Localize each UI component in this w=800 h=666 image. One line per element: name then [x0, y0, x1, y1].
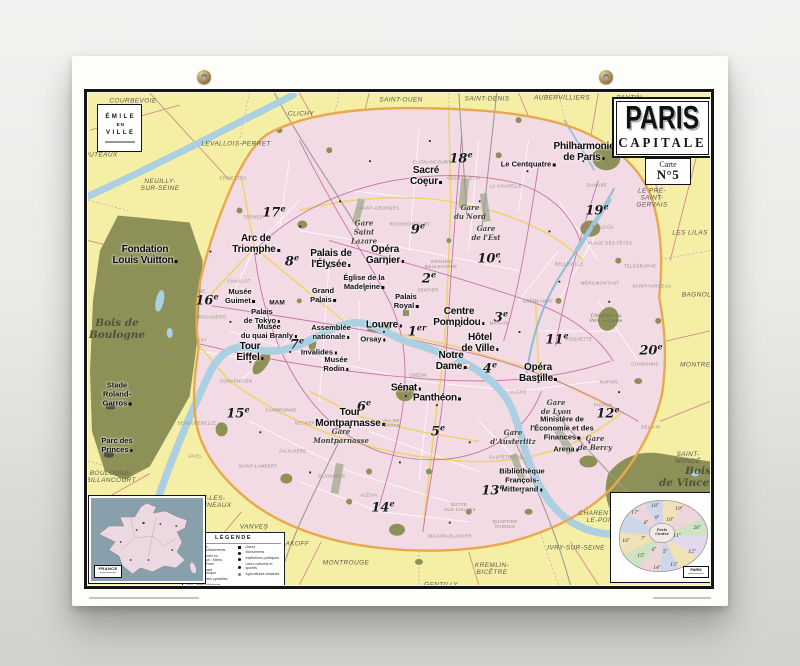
legend-item-label: Aires piétonnes — [196, 584, 221, 585]
map-label-m2: MuséeGuimet — [225, 287, 255, 305]
map-label-m1: NotreDame — [436, 350, 467, 372]
map-label-m1: Hôtelde Ville — [461, 332, 498, 354]
map-label-m1: Panthéon — [413, 393, 461, 404]
legend-item-label: Monuments — [246, 551, 265, 555]
map-label-arr: 14e — [371, 498, 394, 515]
map-label-sub: SAINT-MANDÉ — [675, 451, 700, 465]
legend-swatch-dot-icon — [238, 552, 241, 555]
map-frame: COURBEVOIEPUTEAUXNEUILLY-SUR-SEINELEVALL… — [84, 89, 714, 589]
map-label-arr: 8e — [285, 252, 299, 269]
map-label-arr: 1er — [408, 322, 426, 339]
map-label-q: JAVEL — [188, 454, 203, 459]
map-label-m2: PalaisRoyal — [394, 292, 419, 310]
map-label-q: TERNES — [243, 215, 263, 220]
arrondissement-number: 7e — [641, 536, 646, 543]
map-label-q: LA MOUZAÏA — [584, 225, 613, 230]
map-label-sub: LE PRÉ-SAINT-GERVAIS — [636, 188, 667, 209]
map-label-sub: MONTROUGE — [323, 560, 370, 567]
map-label-q: OBERKAMPF — [523, 299, 553, 304]
paris-map-poster: COURBEVOIEPUTEAUXNEUILLY-SUR-SEINELEVALL… — [72, 56, 728, 606]
map-label-sub: VANVES — [240, 524, 268, 531]
map-label-q: NATION — [600, 380, 618, 385]
map-label-m2: Palaisde Tokyo — [244, 307, 280, 325]
arrondissement-number: 19e — [675, 506, 683, 513]
map-label-q: PLAISANCE — [318, 474, 345, 479]
map-label-arr: 4e — [483, 359, 497, 376]
legend-item: Institutions publiques — [236, 557, 282, 561]
map-label-q: DANUBE — [587, 183, 607, 188]
map-label-q: TROCADÉRO — [196, 315, 227, 320]
logo-row-2: EN — [117, 122, 125, 129]
map-label-q: QUARTIERCHINOIS — [493, 519, 518, 529]
map-label-gare: Garede Lyon — [541, 398, 571, 416]
map-label-q: FALGUIÈRE — [279, 449, 306, 454]
map-label-q: RANELAGH — [164, 351, 190, 356]
map-label-q: BELLEVILLE — [555, 262, 584, 267]
legend-swatch-sq-icon — [238, 546, 242, 550]
map-label-arr: 7e — [290, 335, 304, 352]
arrondissement-number: 16e — [622, 538, 630, 545]
arrondissement-number: 18e — [651, 503, 659, 510]
arrondissement-number: 8e — [644, 520, 649, 527]
map-label-q: SAINT-LAMBERT — [239, 464, 278, 469]
arrondissement-number: 11e — [673, 533, 681, 540]
legend-item-label: Gares — [245, 546, 255, 550]
map-label-arr: 6e — [357, 397, 371, 414]
france-label: FRANCE — [95, 566, 121, 572]
map-label-m1: Sénat — [391, 383, 421, 394]
arrondissement-number: 5e — [663, 549, 668, 556]
map-label-arr: 11e — [545, 330, 568, 347]
map-label-q: TÉLÉGRAPHE — [624, 264, 656, 269]
map-label-sub: GENTILLY — [424, 582, 458, 586]
map-label-q: ÉPINETTES — [219, 176, 246, 181]
arrondissement-number: 20e — [693, 525, 701, 532]
map-label-q: ODÉON — [409, 373, 427, 378]
map-label-q: SAINT-GEORGES — [359, 206, 399, 211]
arrondissement-number: 9e — [655, 515, 660, 522]
map-label-m2: Muséedu quai Branly — [241, 322, 297, 340]
map-label-arr: 13e — [481, 481, 504, 498]
map-label-q: MARAIS — [490, 321, 509, 326]
map-label-sub: BAGNOLET — [682, 292, 710, 299]
map-label-m1: Arc deTriomphe — [232, 233, 280, 255]
map-label-m2: MuséeRodin — [323, 355, 348, 373]
map-label-sub: SAINT-DENIS — [465, 96, 510, 103]
legend-item: Aires piétonnes — [186, 584, 232, 585]
map-label-sub: NEUILLY-SUR-SEINE — [141, 178, 180, 192]
poster-subtitle: CAPITALE — [618, 135, 706, 151]
map-label-m2: GrandPalais — [310, 286, 336, 304]
map-label-q: SAINT-FARGEAU — [633, 284, 672, 289]
map-label-arr: 5e — [431, 422, 445, 439]
map-label-m3: MAM — [269, 300, 285, 307]
logo-row-3: VILLE — [106, 129, 136, 138]
map-label-m2: Le Centquatre — [501, 160, 556, 169]
map-label-arr: 9e — [411, 220, 425, 237]
map-label-q: ROQUETTE — [566, 337, 593, 342]
map-label-q: ROCHECHOUART — [390, 222, 431, 227]
poster-title: PARIS — [625, 103, 699, 132]
map-label-q: LA CHAPELLE — [490, 184, 523, 189]
map-label-m1: SacréCoeur — [410, 165, 442, 187]
map-label-arr: 3e — [494, 308, 508, 325]
map-label-bois: Bois deBoulogne — [89, 317, 145, 341]
map-label-sub: BOULOGNE-BILLANCOURT — [88, 470, 136, 484]
map-label-bois: Boisde Vincennes — [659, 465, 710, 489]
map-label-q: CAMBRONNE — [265, 408, 296, 413]
carte-number: N°5 — [646, 169, 690, 181]
map-label-q: LA MUETTE — [160, 318, 187, 323]
map-label-m1: TourMontparnasse — [315, 407, 385, 429]
brand-logo: ÉMILE EN VILLE — [97, 104, 142, 152]
copyright-line — [89, 597, 199, 600]
map-label-q: BUTTE-AUX-CAILLES — [444, 502, 476, 512]
arrondissement-number: 10e — [666, 517, 674, 524]
map-label-sub: KREMLIN-BICÊTRE — [475, 562, 509, 576]
legend-column: GaresMonumentsInstitutions publiquesLieu… — [236, 546, 282, 586]
france-subtext-bar — [100, 572, 116, 573]
map-label-q: CONVENTION — [220, 379, 252, 384]
map-label-q: MAISON-BLANCHE — [428, 534, 472, 539]
map-label-arr: 12e — [596, 404, 619, 421]
arrondissement-number: 13e — [670, 562, 678, 569]
france-inset: FRANCE — [88, 495, 206, 584]
map-label-arr: 10e — [477, 249, 500, 266]
map-label-m2: Invalides — [301, 348, 337, 357]
map-label-sub: MONTREUIL — [680, 362, 710, 369]
map-label-m2: Parc desPrinces — [101, 436, 132, 454]
france-inset-sea: FRANCE — [91, 498, 203, 581]
map-label-m1: Philharmoniede Paris — [554, 141, 615, 163]
legend-swatch-dotg-icon — [238, 573, 241, 576]
map-label-pit: Cimetière duPère Lachaise — [590, 314, 623, 324]
arrondissements-inset-body: 17e18e19e20e16e8e9e10e11e12e5e6e7e13e14e… — [613, 495, 710, 580]
legend-swatch-dot-icon — [238, 558, 241, 561]
map-area: COURBEVOIEPUTEAUXNEUILLY-SUR-SEINELEVALL… — [88, 93, 710, 585]
legend-swatch-dot-icon — [238, 566, 241, 569]
logo-row-1: ÉMILE — [105, 113, 136, 122]
map-label-sub: LEVALLOIS-PERRET — [201, 141, 271, 148]
map-label-q: GRANDSBOULEVARDS — [425, 259, 458, 269]
map-label-sub: AUBERVILLIERS — [534, 95, 590, 102]
map-label-q: PLACE DES FÊTES — [588, 241, 632, 246]
map-label-gare: GareSaintLazare — [351, 219, 377, 246]
map-label-sub: IVRY-SUR-SEINE — [547, 545, 605, 552]
legend-item-label: Institutions publiques — [246, 557, 280, 561]
legend-item: Monuments — [236, 551, 282, 555]
map-label-sub: LES LILAS — [672, 230, 707, 237]
arrondissements-inset: 17e18e19e20e16e8e9e10e11e12e5e6e7e13e14e… — [610, 492, 710, 583]
map-label-sub: SAINT-OUEN — [379, 97, 423, 104]
map-label-m2: BibliothèqueFrançois-Mitterrand — [499, 467, 544, 494]
map-label-m2: Orsay — [360, 335, 385, 344]
map-label-arr: 15e — [226, 404, 249, 421]
title-block: PARIS CAPITALE — [612, 97, 710, 158]
map-label-arr: 18e — [449, 149, 472, 166]
legend-item-label: Lieux culturels et sportifs — [246, 563, 282, 571]
map-label-arr: 2e — [422, 269, 436, 286]
map-label-m1: FondationLouis Vuitton — [113, 244, 178, 266]
map-label-q: SENTIER — [417, 288, 438, 293]
map-label-q: BEL-AIR — [641, 425, 660, 430]
map-label-q: PICPUS — [594, 403, 612, 408]
logo-baseline — [105, 141, 135, 143]
map-label-m2: StadeRoland-Garros — [103, 381, 132, 408]
legend-item-label: Agricultures urbaines — [246, 573, 280, 577]
paris-inset-label-box: PARIS — [683, 566, 709, 578]
map-label-q: SALPÊTRIÈRE — [489, 455, 522, 460]
map-label-q: MÉNILMONTANT — [581, 281, 619, 286]
paris-inset-subtext-bar — [688, 573, 704, 574]
paris-centre-label: ParisCentre — [655, 529, 669, 537]
map-label-m1: CentrePompidou — [433, 306, 484, 328]
map-label-m2: Ministère del'Économie et desFinances — [530, 415, 593, 442]
map-label-gare: Garede l'Est — [471, 224, 500, 242]
map-label-gare: Gared'Austerlitz — [490, 428, 535, 446]
france-label-box: FRANCE — [94, 565, 122, 578]
arrondissement-number: 17e — [631, 510, 639, 517]
map-label-q: AUTEUIL — [129, 388, 150, 393]
map-label-sub: CLICHY — [288, 111, 314, 118]
map-label-q: DAUPHINE — [180, 289, 205, 294]
arrondissement-number: 14e — [653, 565, 661, 572]
grommet-icon — [599, 70, 613, 84]
map-label-m1: Palais del'Élysée — [310, 248, 352, 270]
arrondissement-number: 15e — [637, 553, 645, 560]
legend-item: Gares — [236, 546, 282, 550]
map-label-m1: Louvre — [366, 320, 402, 331]
map-label-q: BEAUGRENELLE — [178, 421, 217, 426]
map-label-q: NECKER — [295, 421, 315, 426]
map-label-sub: PUTEAUX — [88, 152, 118, 159]
map-label-arr: 19e — [585, 201, 608, 218]
map-label-q: ALÉSIA — [360, 493, 377, 498]
map-label-q: PASSY — [191, 338, 207, 343]
map-label-m2: Arena — [553, 445, 578, 454]
arrondissement-number: 12e — [688, 549, 696, 556]
map-label-m2: Église de laMadeleine — [343, 273, 384, 291]
map-label-q: CHARONNE — [631, 362, 658, 367]
map-label-m1: OpéraBastille — [519, 362, 557, 384]
legend-item: Agricultures urbaines — [236, 573, 282, 577]
map-label-m2: Assembléenationale — [311, 323, 351, 341]
map-label-arr: 17e — [262, 203, 285, 220]
map-label-gare: GareMontparnasse — [313, 427, 369, 445]
map-label-m1: TourEiffel — [236, 341, 263, 363]
map-label-m1: OpéraGarnier — [366, 244, 404, 266]
map-label-gare: Garede Bercy — [578, 434, 612, 452]
arrondissement-number: 6e — [652, 547, 657, 554]
legend-swatch-gray-icon — [186, 584, 194, 585]
map-label-q: VAL-DE-GRÂCE — [382, 418, 401, 428]
map-label-arr: 20e — [639, 341, 662, 358]
grommet-icon — [197, 70, 211, 84]
map-label-q: CLIGNANCOURT — [413, 160, 452, 165]
map-label-q: GOUTTE D'OR — [447, 176, 480, 181]
credits-line — [653, 597, 711, 600]
map-label-arr: 16e — [195, 291, 218, 308]
wall-background: COURBEVOIEPUTEAUXNEUILLY-SUR-SEINELEVALL… — [0, 0, 800, 666]
legend-item: Lieux culturels et sportifs — [236, 563, 282, 571]
map-label-q: CHAILLOT — [227, 279, 251, 284]
title-inner-border: PARIS CAPITALE — [616, 101, 709, 155]
map-label-q: ALIGRE — [509, 390, 527, 395]
carte-number-box: Carte N°5 — [645, 158, 691, 185]
map-label-gare: Garedu Nord — [454, 203, 486, 221]
